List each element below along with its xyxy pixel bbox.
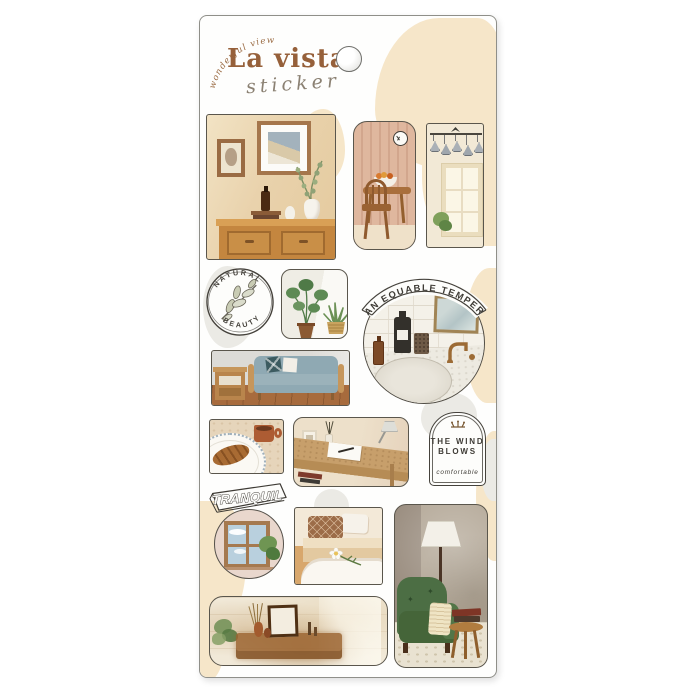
hanging-bell [444,135,445,144]
badge-tranquil-text: TRANQUIL [212,488,283,508]
sticker-armchair: ✦ ✦ [394,504,488,668]
patterned-pillow [308,516,343,539]
hanging-bell [430,141,440,152]
sticker-console-wall [209,596,388,666]
amber-bottle [373,341,384,365]
hanging-bell [477,135,478,142]
monstera-plant [286,279,328,338]
badge-wind-caption: comfortable [430,469,485,476]
hanging-bell [466,135,467,145]
stitch-mark: ✦ [407,595,414,604]
sprig-icon [449,420,467,429]
sticker-potted-plants [281,269,348,339]
dresser [219,219,336,260]
hanging-bell [463,145,473,156]
vase [264,628,271,638]
white-pillow [341,513,369,533]
sticker-sheet: wonderful view La vista sticker [199,15,497,678]
window-sill [220,567,274,570]
side-table [215,367,245,400]
book-stack [452,609,482,623]
badge-equable-banner: AN EQUABLE TEMPER [358,254,491,320]
desk-leg [390,464,394,487]
sticker-bright-window [426,123,484,248]
badge-natural-beauty: NATURAL BEAUTY [199,259,282,345]
frame-art [225,148,237,166]
jar [414,333,429,354]
stitch-mark: ✦ [427,587,434,596]
picture-frame-small [217,139,245,177]
eucalyptus-plant [291,155,335,203]
sticker-sofa [211,350,350,406]
badge-wind-line2: BLOWS [430,447,485,456]
sticker-croissant-coffee [209,419,284,474]
coffee-mug [254,425,274,442]
dark-bottle [394,317,411,353]
hanging-rod [430,133,482,135]
stool [449,622,483,662]
sticker-room-dresser [206,114,336,260]
hanging-bell [452,141,462,152]
sofa [248,356,344,400]
console-table [236,633,342,659]
badge-wind-line1: THE WIND [430,437,485,446]
svg-text:AN EQUABLE TEMPER: AN EQUABLE TEMPER [362,283,486,317]
badge-wind-blows: THE WIND BLOWS comfortable [429,412,486,486]
jug [285,206,295,220]
sticker-dining-corner [353,121,416,250]
badge-equable-text: AN EQUABLE TEMPER [362,283,486,317]
sticker-bathroom-sink: AN EQUABLE TEMPER [358,254,491,407]
desk-lamp [368,419,402,445]
amber-bottle [261,191,270,211]
sink-basin [374,357,452,404]
wall-clock [393,131,408,146]
chair [361,179,393,241]
dresser-drawer [281,231,325,255]
sticker-writing-desk [293,417,409,487]
vase [304,199,320,221]
white-cushion [283,358,298,373]
patterned-cushion [265,356,282,373]
punch-hole [336,46,362,72]
sticker-bed [294,507,383,585]
header: wonderful view La vista sticker [200,16,497,111]
sticker-window-circle [214,509,284,579]
plant [439,220,452,231]
plant [266,547,280,560]
faucet [446,337,476,363]
hanging-bell [433,135,434,141]
dresser-drawer [227,231,271,255]
hanging-bell [441,144,451,155]
daisy-flower [329,548,363,568]
mirror [267,604,298,637]
hanging-bell [474,142,484,153]
candlestick [308,622,311,635]
aloe-plant [324,303,348,334]
bird-icon [451,127,460,132]
vase [254,622,263,637]
candlestick [314,627,317,636]
hanging-bell [455,135,456,141]
